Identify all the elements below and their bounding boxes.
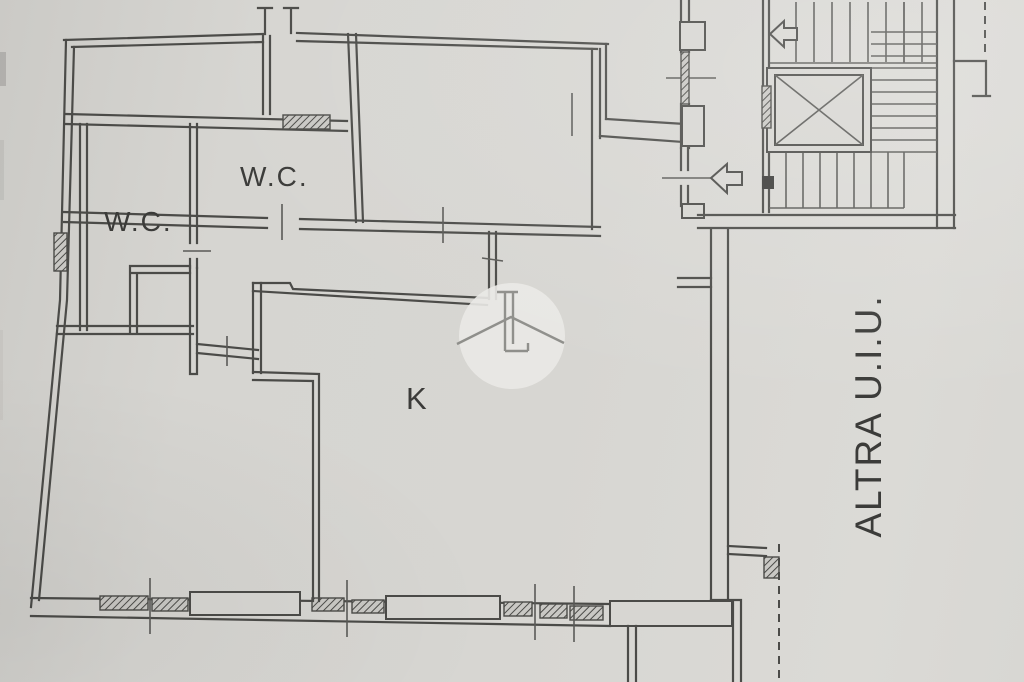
floor-plan-scan: W.C. W.C. K ALTRA U.I.U. — [0, 0, 1024, 682]
shaft-wall — [80, 124, 87, 330]
wall-end-cap — [764, 557, 779, 578]
stairwell — [698, 0, 990, 228]
flue-stub — [678, 278, 711, 287]
kitchen-step-wall — [253, 372, 319, 601]
lower-balcony-walls — [628, 626, 636, 682]
window — [312, 598, 344, 611]
window — [152, 598, 188, 611]
stairs-up-arrow-icon — [770, 21, 797, 47]
room-label-wc-left: W.C. — [104, 206, 173, 237]
masonry-pier — [386, 596, 500, 619]
closet-walls — [130, 266, 190, 332]
elevator — [762, 68, 871, 152]
stair-treads-lower — [786, 152, 888, 208]
window — [504, 602, 532, 616]
masonry-pier — [610, 601, 732, 626]
door-tick — [482, 258, 503, 261]
window — [570, 606, 603, 620]
kitchen-top-wall — [253, 283, 489, 305]
floor-plan-drawing: W.C. W.C. K ALTRA U.I.U. — [0, 0, 1024, 682]
window — [100, 596, 148, 610]
room-label-wc-top: W.C. — [240, 161, 309, 192]
room-label-kitchen: K — [406, 381, 429, 416]
right-wall-details — [680, 22, 705, 218]
living-room-left-wall — [348, 34, 363, 222]
side-window — [54, 233, 67, 271]
house-watermark-icon — [457, 283, 565, 389]
wc-window — [283, 115, 330, 129]
elevator-door — [762, 86, 771, 128]
masonry-pier — [190, 592, 300, 615]
landing-marker — [762, 176, 774, 189]
entrance-arrow-icon — [711, 164, 742, 193]
adjacent-unit-label: ALTRA U.I.U. — [848, 294, 889, 537]
scan-edge-artifacts — [0, 52, 6, 420]
roof-duct-marks — [258, 8, 298, 34]
window — [352, 600, 384, 613]
stair-landing-window — [681, 52, 689, 104]
window — [540, 604, 567, 618]
